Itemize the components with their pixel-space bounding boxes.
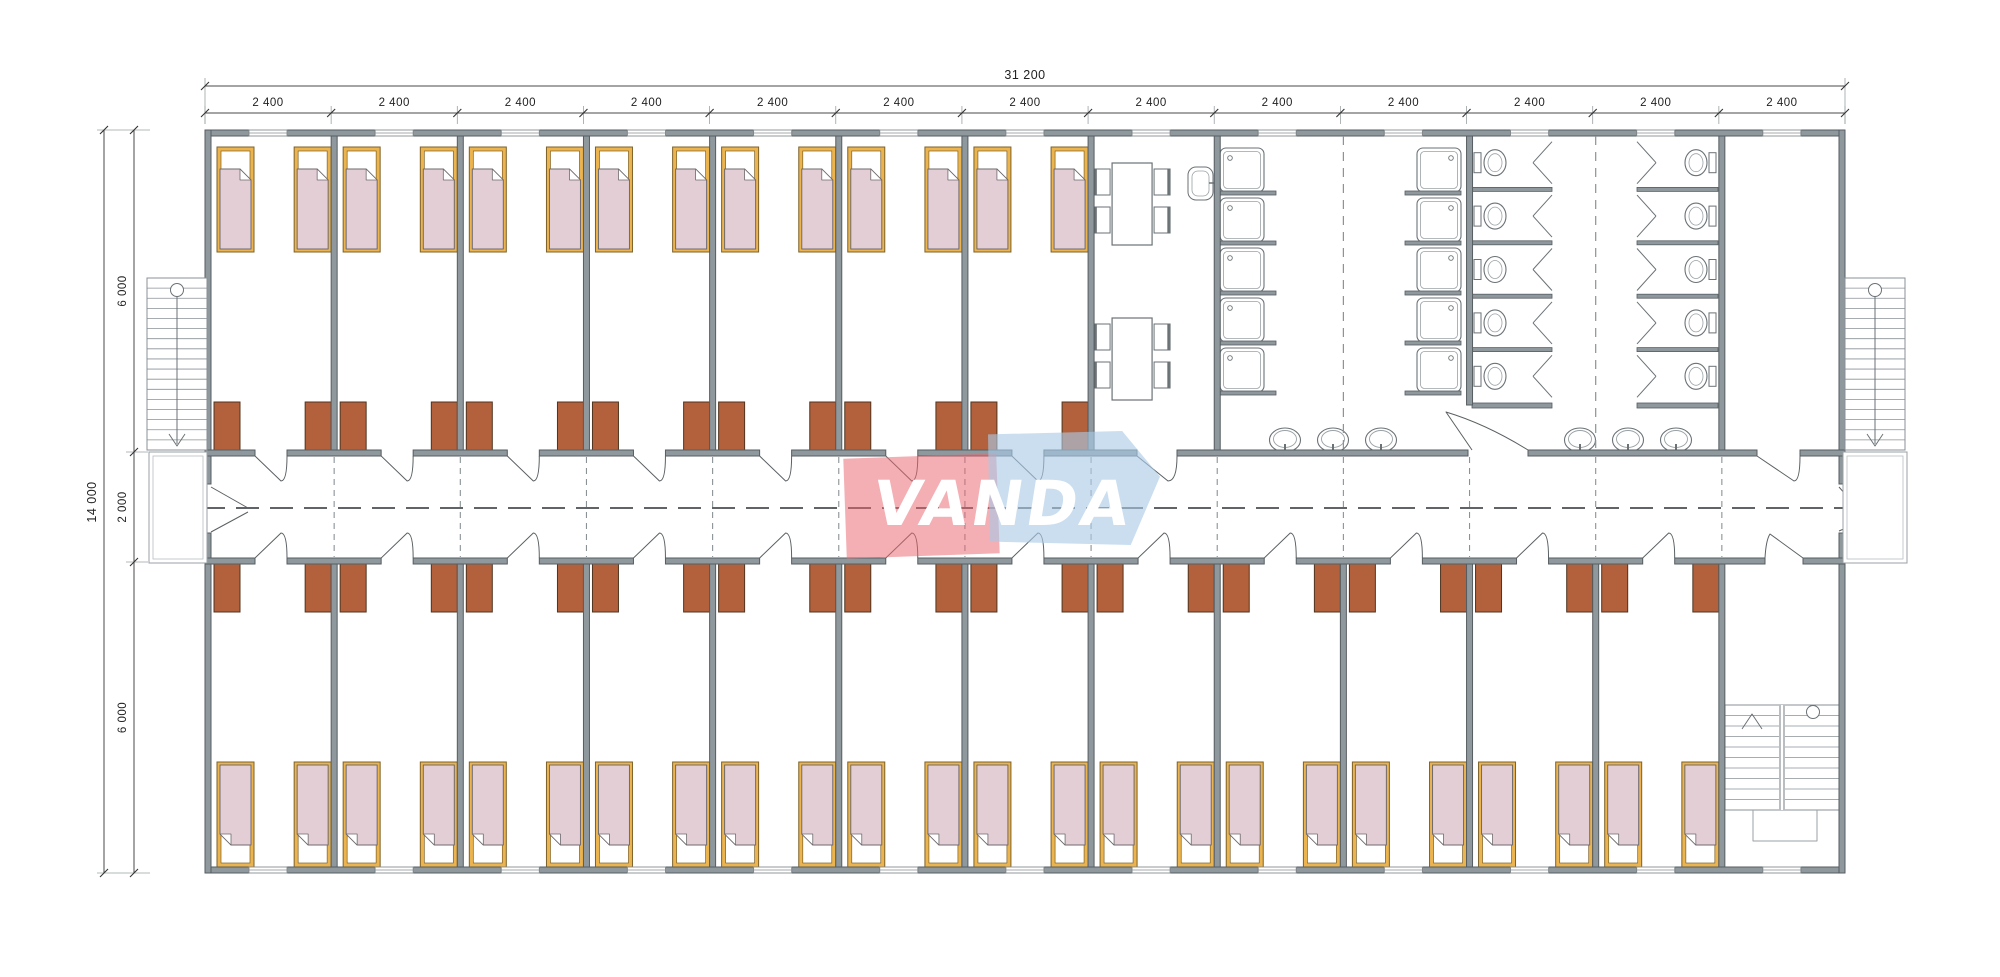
wardrobe	[1314, 564, 1340, 612]
dimension-label-section-height: 6 000	[117, 275, 129, 306]
wardrobe	[719, 564, 745, 612]
bed-blanket	[1559, 765, 1590, 845]
bed-blanket	[725, 765, 756, 845]
wardrobe	[1097, 564, 1123, 612]
exterior-wall-west	[205, 533, 211, 873]
bed-blanket	[977, 765, 1008, 845]
wardrobe	[1223, 564, 1249, 612]
corridor-wall-south	[1549, 558, 1643, 564]
wardrobe	[340, 564, 366, 612]
partition-wall-bottom	[1340, 564, 1346, 867]
wardrobe	[810, 564, 836, 612]
toilet-stall-end-wall	[1637, 403, 1718, 408]
bed-blanket	[676, 765, 707, 845]
bed-blanket	[1103, 765, 1134, 845]
corridor-wall-north	[792, 450, 886, 456]
corridor-wall-north	[539, 450, 633, 456]
corridor-wall-north	[413, 450, 507, 456]
wardrobe	[845, 564, 871, 612]
partition-wall-bottom	[331, 564, 337, 867]
exterior-wall-north	[539, 130, 627, 136]
corridor-wall-south	[1803, 558, 1845, 564]
shower-tray	[1417, 248, 1461, 292]
exterior-wall-north	[1801, 130, 1845, 136]
bed-blanket	[346, 765, 377, 845]
partition-wall-top	[1088, 136, 1094, 450]
exterior-wall-south	[792, 867, 880, 873]
toilet-stall-wall	[1637, 187, 1718, 191]
toilet-tank	[1474, 313, 1481, 333]
exterior-wall-north	[1675, 130, 1763, 136]
toilet-tank	[1474, 366, 1481, 386]
bed-blanket	[802, 169, 833, 249]
exterior-wall-south	[1044, 867, 1132, 873]
partition-wall-top	[1467, 136, 1473, 405]
bed-blanket	[472, 765, 503, 845]
wardrobe	[719, 402, 745, 450]
toilet-stall-wall	[1472, 187, 1552, 191]
wardrobe	[466, 402, 492, 450]
wardrobe	[431, 402, 457, 450]
wardrobe	[1062, 564, 1088, 612]
corridor-wall-north	[665, 450, 759, 456]
toilet-stall-wall	[1472, 241, 1552, 245]
shower-partition-wall	[1405, 191, 1461, 195]
bed-blanket	[928, 169, 959, 249]
wardrobe	[1062, 402, 1088, 450]
dimension-label-module-width: 2 400	[1136, 97, 1167, 109]
shower-partition-wall	[1405, 341, 1461, 345]
toilet-stall-end-wall	[1472, 403, 1552, 408]
corridor-wall-south	[918, 558, 1012, 564]
bed-blanket	[220, 169, 251, 249]
wardrobe	[305, 564, 331, 612]
toilet-stall-wall	[1472, 294, 1552, 298]
shower-partition-wall	[1220, 291, 1276, 295]
wardrobe	[1567, 564, 1593, 612]
dimension-label-module-width: 2 400	[1009, 97, 1040, 109]
dimension-label-module-width: 2 400	[631, 97, 662, 109]
bed-blanket	[851, 169, 882, 249]
corridor-wall-south	[1044, 558, 1138, 564]
exterior-wall-south	[1675, 867, 1763, 873]
bed-blanket	[423, 169, 454, 249]
partition-wall-top	[962, 136, 968, 450]
dimension-label-module-width: 2 400	[1388, 97, 1419, 109]
exterior-wall-south	[287, 867, 375, 873]
partition-wall-bottom	[457, 564, 463, 867]
dimension-label-module-width: 2 400	[883, 97, 914, 109]
exterior-wall-north	[1170, 130, 1258, 136]
exterior-wall-east	[1839, 533, 1845, 873]
bed-blanket	[346, 169, 377, 249]
partition-wall-bottom	[710, 564, 716, 867]
exterior-wall-south	[539, 867, 627, 873]
wardrobe	[971, 564, 997, 612]
shower-tray	[1220, 248, 1264, 292]
partition-wall-top	[1719, 136, 1725, 450]
wardrobe	[936, 564, 962, 612]
wardrobe	[592, 402, 618, 450]
exterior-wall-south	[665, 867, 753, 873]
partition-wall-top	[1214, 136, 1220, 450]
wardrobe	[214, 564, 240, 612]
corridor-wall-north	[1800, 450, 1845, 456]
bed-blanket	[1355, 765, 1386, 845]
exterior-wall-south	[413, 867, 501, 873]
bed-blanket	[423, 765, 454, 845]
corridor-wall-north	[1044, 450, 1137, 456]
stair-start-circle-icon	[1807, 706, 1820, 719]
exterior-wall-north	[665, 130, 753, 136]
entrance-landing	[149, 452, 207, 563]
corridor-wall-south	[1675, 558, 1765, 564]
shower-partition-wall	[1220, 191, 1276, 195]
dimension-label-section-height: 6 000	[117, 702, 129, 733]
shower-partition-wall	[1220, 391, 1276, 395]
bed-blanket	[598, 169, 629, 249]
partition-wall-bottom	[1214, 564, 1220, 867]
bed-blanket	[1054, 169, 1085, 249]
toilet-tank	[1709, 260, 1716, 280]
bed-blanket	[297, 765, 328, 845]
exterior-wall-north	[918, 130, 1006, 136]
exterior-wall-north	[1422, 130, 1510, 136]
exterior-wall-south	[1296, 867, 1384, 873]
wardrobe	[1602, 564, 1628, 612]
toilet-tank	[1474, 260, 1481, 280]
toilet-tank	[1709, 313, 1716, 333]
stair-start-circle-icon	[1869, 284, 1882, 297]
exterior-wall-north	[792, 130, 880, 136]
bed-blanket	[977, 169, 1008, 249]
partition-wall-bottom	[1719, 564, 1725, 867]
bed-blanket	[1229, 765, 1260, 845]
wardrobe	[1441, 564, 1467, 612]
wardrobe	[845, 402, 871, 450]
corridor-wall-south	[1170, 558, 1264, 564]
partition-wall-bottom	[962, 564, 968, 867]
wardrobe	[557, 402, 583, 450]
wardrobe	[1693, 564, 1719, 612]
corridor-wall-south	[539, 558, 633, 564]
exterior-wall-south	[1170, 867, 1258, 873]
corridor-wall-north	[1177, 450, 1468, 456]
toilet-stall-wall	[1637, 241, 1718, 245]
bed-blanket	[1054, 765, 1085, 845]
partition-wall-top	[836, 136, 842, 450]
exterior-wall-north	[1296, 130, 1384, 136]
wardrobe	[1476, 564, 1502, 612]
bed-blanket	[676, 169, 707, 249]
partition-wall-top	[583, 136, 589, 450]
dining-table	[1112, 318, 1152, 400]
corridor-wall-south	[1422, 558, 1516, 564]
bed-blanket	[851, 765, 882, 845]
shower-tray	[1220, 198, 1264, 242]
bed-blanket	[1685, 765, 1716, 845]
wardrobe	[971, 402, 997, 450]
wardrobe	[684, 564, 710, 612]
exterior-wall-north	[205, 130, 249, 136]
stair-start-circle-icon	[171, 284, 184, 297]
bed-blanket	[549, 169, 580, 249]
dimension-label-module-width: 2 400	[1262, 97, 1293, 109]
exterior-wall-north	[287, 130, 375, 136]
shower-partition-wall	[1405, 291, 1461, 295]
dimension-label-module-width: 2 400	[1640, 97, 1671, 109]
wardrobe	[214, 402, 240, 450]
dimension-label-module-width: 2 400	[379, 97, 410, 109]
shower-tray	[1417, 348, 1461, 392]
bed-blanket	[1180, 765, 1211, 845]
exterior-wall-south	[918, 867, 1006, 873]
wardrobe	[340, 402, 366, 450]
corridor-wall-south	[792, 558, 886, 564]
bed-blanket	[1482, 765, 1513, 845]
wardrobe	[305, 402, 331, 450]
corridor-wall-north	[287, 450, 381, 456]
partition-wall-top	[710, 136, 716, 450]
partition-wall-top	[331, 136, 337, 450]
toilet-tank	[1474, 153, 1481, 173]
dimension-label-total-width: 31 200	[1004, 68, 1045, 82]
floor-plan-drawing: 31 2002 4002 4002 4002 4002 4002 4002 40…	[0, 0, 2000, 977]
shower-tray	[1220, 298, 1264, 342]
wardrobe	[592, 564, 618, 612]
bed-blanket	[1433, 765, 1464, 845]
toilet-stall-wall	[1472, 348, 1552, 352]
wardrobe	[936, 402, 962, 450]
corridor-wall-south	[665, 558, 759, 564]
shower-tray	[1220, 348, 1264, 392]
bed-blanket	[1608, 765, 1639, 845]
exterior-wall-north	[413, 130, 501, 136]
shower-tray	[1220, 148, 1264, 192]
toilet-tank	[1709, 366, 1716, 386]
floor-plan-canvas: 31 2002 4002 4002 4002 4002 4002 4002 40…	[0, 0, 2000, 977]
corridor-wall-north	[1528, 450, 1757, 456]
bed-blanket	[549, 765, 580, 845]
partition-wall-top	[457, 136, 463, 450]
exterior-wall-south	[1422, 867, 1510, 873]
wardrobe	[557, 564, 583, 612]
wardrobe	[466, 564, 492, 612]
corridor-wall-north	[918, 450, 1012, 456]
dining-table	[1112, 163, 1152, 245]
toilet-stall-wall	[1637, 348, 1718, 352]
dimension-label-module-width: 2 400	[1766, 97, 1797, 109]
shower-tray	[1417, 198, 1461, 242]
corridor-wall-south	[205, 558, 255, 564]
corridor-wall-south	[413, 558, 507, 564]
shower-partition-wall	[1220, 241, 1276, 245]
bed-blanket	[1306, 765, 1337, 845]
entrance-landing	[1843, 452, 1907, 563]
toilet-tank	[1474, 206, 1481, 226]
partition-wall-bottom	[836, 564, 842, 867]
exterior-wall-north	[1549, 130, 1637, 136]
wardrobe	[1188, 564, 1214, 612]
corridor-wall-north	[205, 450, 255, 456]
dimension-label-module-width: 2 400	[757, 97, 788, 109]
exterior-wall-east	[1839, 130, 1845, 484]
bed-blanket	[472, 169, 503, 249]
dimension-label-module-width: 2 400	[252, 97, 283, 109]
exterior-wall-north	[1044, 130, 1132, 136]
exterior-wall-south	[1801, 867, 1845, 873]
bed-blanket	[725, 169, 756, 249]
exterior-wall-south	[205, 867, 249, 873]
toilet-tank	[1709, 153, 1716, 173]
bed-blanket	[802, 765, 833, 845]
bed-blanket	[297, 169, 328, 249]
dimension-label-total-height: 14 000	[85, 481, 99, 522]
corridor-wall-south	[287, 558, 381, 564]
dimension-label-section-height: 2 000	[117, 491, 129, 522]
wardrobe	[810, 402, 836, 450]
wardrobe	[1349, 564, 1375, 612]
corridor-wall-south	[1296, 558, 1390, 564]
bed-blanket	[598, 765, 629, 845]
partition-wall-bottom	[583, 564, 589, 867]
partition-wall-bottom	[1088, 564, 1094, 867]
wardrobe	[684, 402, 710, 450]
shower-tray	[1417, 298, 1461, 342]
partition-wall-bottom	[1593, 564, 1599, 867]
shower-partition-wall	[1220, 341, 1276, 345]
shower-partition-wall	[1405, 241, 1461, 245]
toilet-tank	[1709, 206, 1716, 226]
shower-partition-wall	[1405, 391, 1461, 395]
bed-blanket	[928, 765, 959, 845]
shower-tray	[1417, 148, 1461, 192]
exterior-wall-south	[1549, 867, 1637, 873]
wardrobe	[431, 564, 457, 612]
dimension-label-module-width: 2 400	[505, 97, 536, 109]
toilet-stall-wall	[1637, 294, 1718, 298]
dimension-label-module-width: 2 400	[1514, 97, 1545, 109]
bed-blanket	[220, 765, 251, 845]
partition-wall-bottom	[1467, 564, 1473, 867]
